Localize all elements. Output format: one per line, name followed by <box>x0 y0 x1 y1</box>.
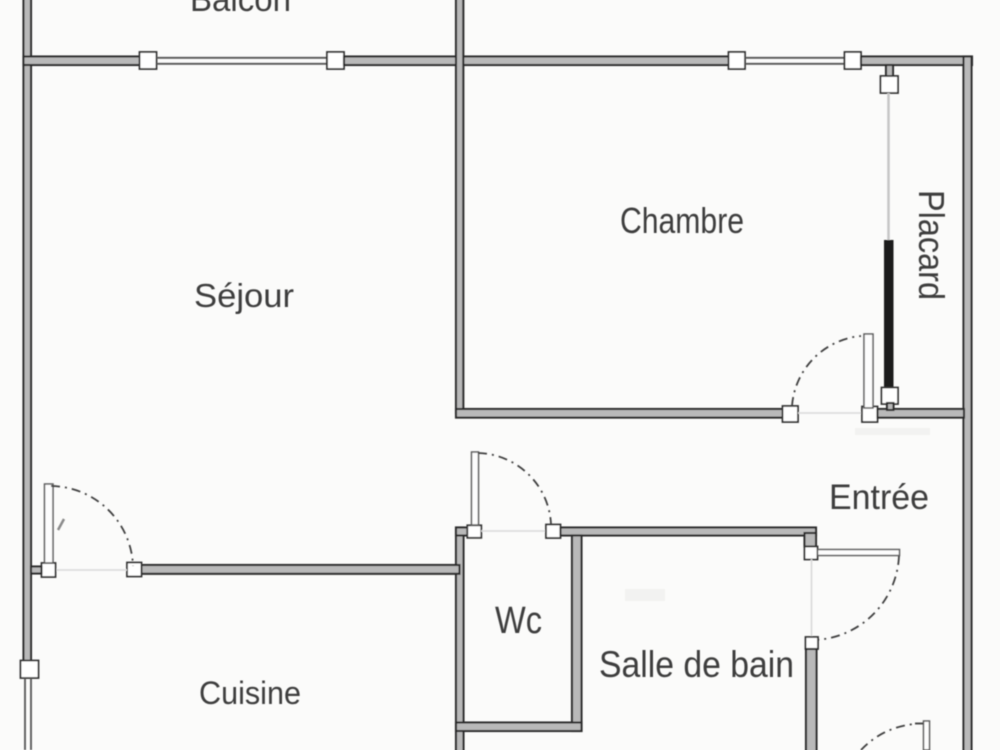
svg-text:Chambre: Chambre <box>620 200 744 241</box>
svg-text:Entrée: Entrée <box>829 478 929 517</box>
svg-text:Cuisine: Cuisine <box>199 675 301 711</box>
svg-text:Wc: Wc <box>495 600 542 642</box>
svg-text:Salle de bain: Salle de bain <box>599 644 794 685</box>
svg-text:Balcon: Balcon <box>190 0 291 19</box>
svg-text:Placard: Placard <box>911 190 952 300</box>
svg-text:Séjour: Séjour <box>194 277 294 314</box>
